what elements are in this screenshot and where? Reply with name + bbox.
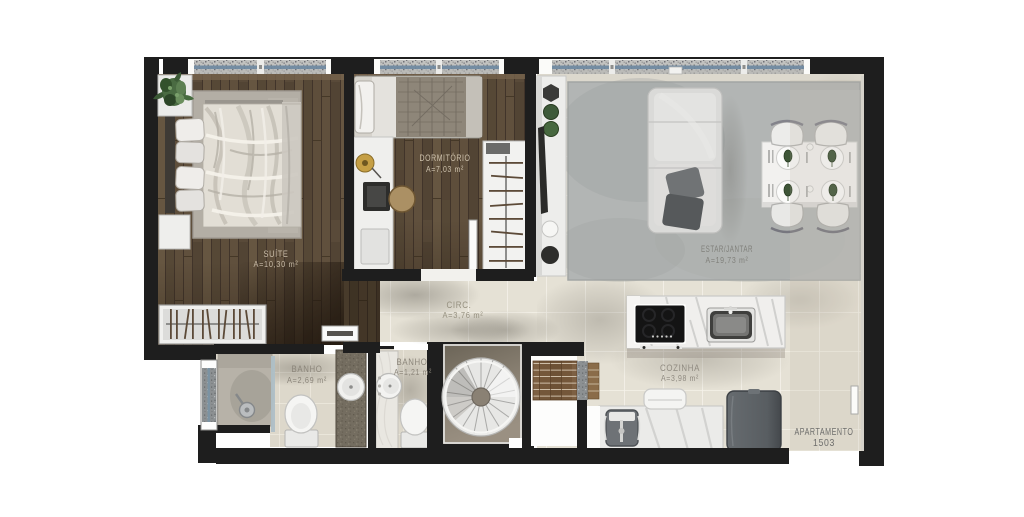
svg-text:A=1,21 m²: A=1,21 m² — [394, 367, 432, 377]
svg-text:A=19,73 m²: A=19,73 m² — [706, 255, 749, 265]
svg-text:ESTAR/JANTAR: ESTAR/JANTAR — [701, 244, 753, 255]
svg-text:A=3,98 m²: A=3,98 m² — [661, 373, 699, 383]
svg-text:DORMITÓRIO: DORMITÓRIO — [420, 153, 471, 164]
svg-text:1503: 1503 — [813, 437, 835, 449]
svg-text:A=10,30 m²: A=10,30 m² — [254, 259, 299, 269]
svg-text:A=7,03 m²: A=7,03 m² — [426, 164, 464, 174]
svg-text:BANHO: BANHO — [292, 364, 323, 375]
svg-text:A=3,76 m²: A=3,76 m² — [443, 310, 484, 320]
svg-text:A=2,69 m²: A=2,69 m² — [287, 375, 327, 385]
